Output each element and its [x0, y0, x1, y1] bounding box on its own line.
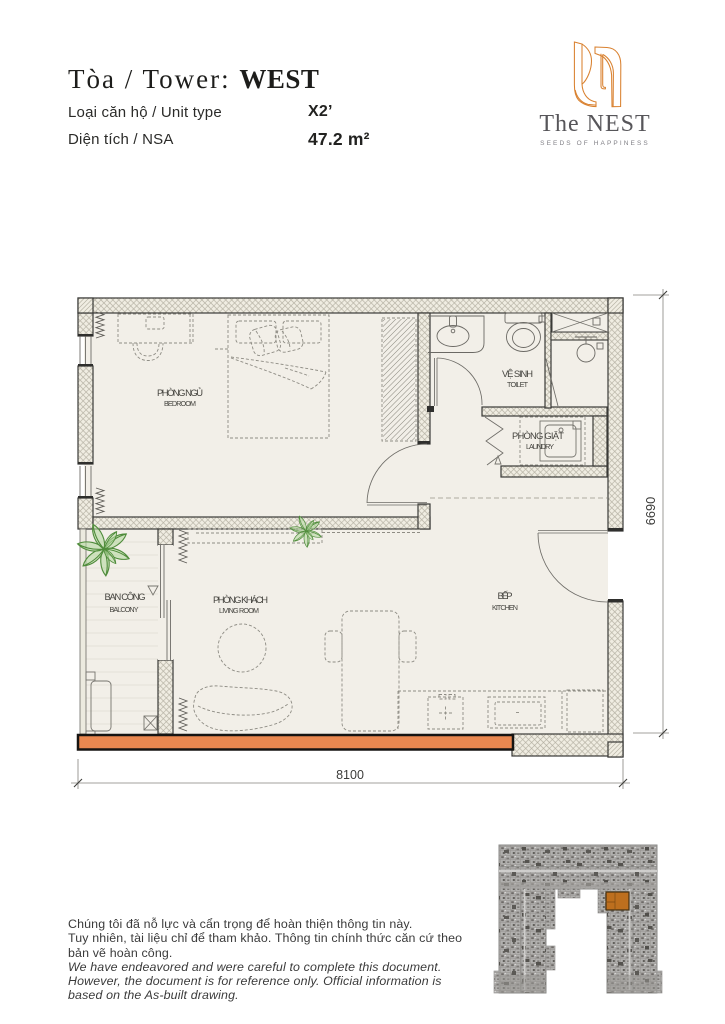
svg-text:LIVING ROOM: LIVING ROOM — [219, 606, 259, 615]
svg-text:PHÒNG KHÁCH: PHÒNG KHÁCH — [213, 594, 268, 605]
svg-text:PHÒNG NGỦ: PHÒNG NGỦ — [157, 387, 203, 398]
svg-text:6690: 6690 — [643, 497, 658, 525]
svg-text:PHÒNG GIẶT: PHÒNG GIẶT — [512, 430, 564, 441]
svg-text:VỆ SINH: VỆ SINH — [502, 368, 533, 379]
svg-text:8100: 8100 — [336, 768, 364, 782]
svg-text:TOILET: TOILET — [507, 380, 529, 389]
svg-text:BẾP: BẾP — [498, 590, 513, 601]
svg-text:LAUNDRY: LAUNDRY — [526, 442, 554, 451]
svg-text:BALCONY: BALCONY — [110, 605, 139, 614]
svg-text:BAN CÔNG: BAN CÔNG — [105, 591, 146, 602]
svg-text:BEDROOM: BEDROOM — [164, 399, 196, 408]
svg-text:KITCHEN: KITCHEN — [492, 603, 518, 612]
